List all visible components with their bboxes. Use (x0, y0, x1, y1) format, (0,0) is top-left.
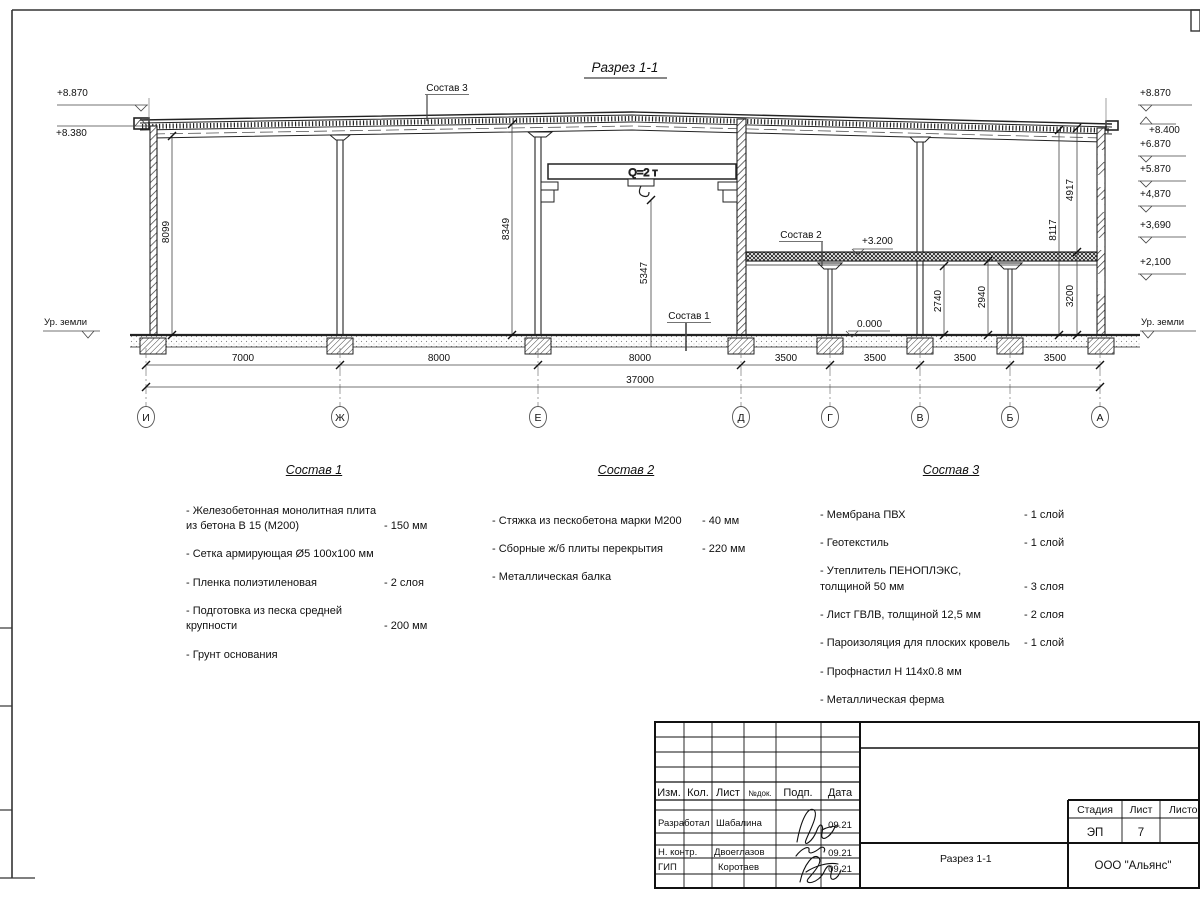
tb-name-2: Двоеглазов (714, 847, 765, 858)
dim-8349: 8349 (501, 217, 512, 240)
composition-item: - Сетка армирующая Ø5 100х100 мм (186, 547, 442, 562)
axis-v: В (916, 412, 923, 424)
tb-sheet-label: Лист (1130, 804, 1153, 816)
tb-col-kol: Кол. (687, 787, 709, 799)
tb-sheet-number: 7 (1138, 827, 1144, 839)
dim-4917: 4917 (1065, 178, 1076, 201)
post-g (828, 269, 832, 335)
composition-item: - Грунт основания (186, 648, 442, 663)
tb-col-ndok: №док. (748, 789, 771, 798)
drawing-sheet: { "section": { "title": "Разрез 1-1", "c… (0, 0, 1200, 900)
dim-total: 37000 (626, 375, 654, 386)
elev-right-8870: +8.870 (1140, 88, 1171, 99)
structure (150, 119, 1105, 335)
tb-name-3: Коротаев (718, 862, 759, 873)
wall-axis-i (150, 126, 157, 335)
tb-role-3: ГИП (658, 862, 677, 873)
axis-bubbles: И Ж Е Д Г В Б А (138, 407, 1109, 428)
elev-right-2100: +2,100 (1140, 257, 1171, 268)
signature-1 (797, 809, 839, 843)
column-zh (337, 135, 343, 335)
dimension-texts-horizontal: 7000 8000 8000 3500 3500 3500 3500 37000 (232, 353, 1067, 386)
wall-axis-d (737, 119, 746, 335)
dim-2740: 2740 (933, 289, 944, 312)
tb-col-podp: Подп. (783, 787, 812, 799)
tb-role-2: Н. контр. (658, 847, 697, 858)
dim-8117: 8117 (1048, 219, 1059, 241)
composition-1-items: - Железобетонная монолитная плита из бет… (186, 504, 442, 664)
tb-stage-label: Стадия (1077, 804, 1113, 816)
dimension-texts-vertical: 8099 8349 5347 2740 2940 3200 8117 4917 (161, 178, 1076, 312)
axis-i: И (142, 412, 150, 424)
crane-beam: Q=2 т (541, 164, 737, 202)
composition-1-title: Состав 1 (186, 462, 442, 480)
dim-span-5: 3500 (864, 353, 887, 364)
composition-item: - Металлическая балка (492, 570, 760, 585)
axis-a: А (1096, 412, 1103, 424)
tb-col-izm: Изм. (657, 787, 681, 799)
axis-zh: Ж (335, 412, 345, 424)
label-sostav1: Состав 1 (668, 311, 710, 322)
composition-list-1: Состав 1 - Железобетонная монолитная пли… (186, 462, 442, 676)
elev-right-8400: +8.400 (1149, 125, 1180, 136)
post-b (1008, 269, 1012, 335)
dim-span-4: 3500 (775, 353, 798, 364)
tb-company: ООО "Альянс" (1095, 860, 1172, 872)
elev-right-3690: +3,690 (1140, 220, 1171, 231)
composition-list-3: Состав 3 - Мембрана ПВХ - 1 слой - Геоте… (820, 462, 1082, 722)
title-block: Изм. Кол. Лист №док. Подп. Дата Разработ… (655, 722, 1200, 888)
crane-trolley (628, 179, 654, 186)
tb-role-1: Разработал (658, 818, 710, 829)
tb-stage-value: ЭП (1087, 827, 1104, 839)
tb-col-list: Лист (716, 787, 740, 799)
composition-item: - Пленка полиэтиленовая - 2 слоя (186, 576, 442, 591)
dim-3200: 3200 (1065, 284, 1076, 307)
crane-capacity-label: Q=2 т (628, 167, 657, 179)
tb-name-1: Шабалина (716, 818, 763, 829)
elev-zero: 0.000 (857, 319, 882, 330)
tb-date-1: 09.21 (828, 820, 852, 831)
axis-d: Д (737, 412, 744, 424)
signature-2 (796, 847, 825, 856)
composition-list-2: Состав 2 - Стяжка из пескобетона марки М… (492, 462, 760, 599)
composition-item: - Железобетонная монолитная плита из бет… (186, 504, 442, 535)
dim-2940: 2940 (977, 285, 988, 308)
crane-hook-icon (639, 186, 649, 197)
composition-item: - Пароизоляция для плоских кровель - 1 с… (820, 636, 1082, 651)
tb-date-2: 09.21 (828, 848, 852, 859)
roof (134, 98, 1118, 142)
leader-labels: Состав 3 Состав 2 Состав 1 (425, 83, 823, 351)
composition-item: - Мембрана ПВХ - 1 слой (820, 508, 1082, 523)
elevation-marks: +8.870 +8.380 +8.870 +8.400 +6.870 +5.87… (43, 88, 1196, 338)
elev-floor-3200: +3.200 (862, 236, 893, 247)
page-title: Разрез 1-1 (592, 60, 659, 75)
composition-item: - Лист ГВЛВ, толщиной 12,5 мм - 2 слоя (820, 608, 1082, 623)
label-sostav3: Состав 3 (426, 83, 468, 94)
composition-2-items: - Стяжка из пескобетона марки М200 - 40 … (492, 514, 760, 586)
ground-level-label-right: Ур. земли (1141, 317, 1184, 328)
composition-3-items: - Мембрана ПВХ - 1 слой - Геотекстиль - … (820, 508, 1082, 709)
dim-8099: 8099 (161, 220, 172, 243)
dim-span-2: 8000 (428, 353, 451, 364)
axis-b: Б (1007, 412, 1014, 424)
elev-left-8380: +8.380 (56, 128, 87, 139)
composition-item: - Утеплитель ПЕНОПЛЭКС, толщиной 50 мм -… (820, 564, 1082, 595)
tb-doc-name: Разрез 1-1 (940, 853, 992, 865)
dim-5347: 5347 (639, 261, 650, 284)
ground (130, 335, 1140, 354)
axis-g: Г (827, 412, 833, 424)
tb-col-data: Дата (828, 787, 853, 799)
dim-span-7: 3500 (1044, 353, 1067, 364)
elev-right-6870: +6.870 (1140, 139, 1171, 150)
composition-item: - Сборные ж/б плиты перекрытия - 220 мм (492, 542, 760, 557)
label-sostav2: Состав 2 (780, 230, 822, 241)
dim-span-6: 3500 (954, 353, 977, 364)
composition-3-title: Состав 3 (820, 462, 1082, 480)
composition-item: - Геотекстиль - 1 слой (820, 536, 1082, 551)
dim-span-1: 7000 (232, 353, 255, 364)
composition-item: - Подготовка из песка средней крупности … (186, 604, 442, 635)
composition-2-title: Состав 2 (492, 462, 760, 480)
elev-right-5870: +5.870 (1140, 164, 1171, 175)
elev-right-4870: +4,870 (1140, 189, 1171, 200)
section-drawing: Разрез 1-1 (0, 0, 1200, 900)
axis-e: Е (534, 412, 541, 424)
column-e (535, 132, 541, 335)
dimensions-vertical (168, 120, 1081, 347)
ground-level-label-left: Ур. земли (44, 317, 87, 328)
composition-item: - Металлическая ферма (820, 693, 1082, 708)
column-v (917, 137, 923, 335)
tb-sheets-label: Листов (1169, 804, 1200, 816)
composition-item: - Стяжка из пескобетона марки М200 - 40 … (492, 514, 760, 529)
elev-left-8870: +8.870 (57, 88, 88, 99)
composition-item: - Профнастил Н 114х0.8 мм (820, 665, 1082, 680)
dim-span-3: 8000 (629, 353, 652, 364)
drawing-title: Разрез 1-1 (584, 60, 667, 78)
